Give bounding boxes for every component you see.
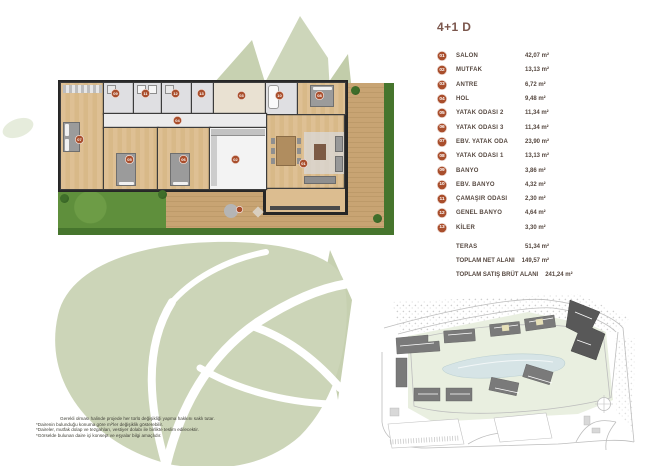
plan-badge-11: 11 xyxy=(141,89,150,98)
plan-type-title: 4+1 D xyxy=(437,20,647,34)
room-area: 2,30 m² xyxy=(525,196,546,202)
legend-row: 09BANYO3,86 m² xyxy=(437,163,647,177)
site-plan xyxy=(378,292,646,458)
room-label: KİLER xyxy=(456,225,475,231)
room-label: HOL xyxy=(456,96,469,102)
dining-table xyxy=(276,136,296,166)
salon-extension xyxy=(263,189,348,215)
terrace-deck-right xyxy=(348,83,384,195)
room-number-badge: 06 xyxy=(437,123,447,133)
plan-badge-03: 03 xyxy=(237,91,246,100)
room-label: GENEL BANYO xyxy=(456,210,502,216)
room-area: 9,48 m² xyxy=(525,96,546,102)
room-area: 11,34 m² xyxy=(525,110,549,116)
room-area: 11,34 m² xyxy=(525,125,549,131)
room-label: BANYO xyxy=(456,168,479,174)
wardrobe xyxy=(63,85,102,93)
chair xyxy=(271,158,275,164)
teras-area: 51,34 m² xyxy=(525,244,549,250)
room-area: 4,32 m² xyxy=(525,182,546,188)
room-number-badge: 10 xyxy=(437,180,447,190)
room-number-badge: 13 xyxy=(437,223,447,233)
roof-patch-1 xyxy=(502,325,510,332)
chair xyxy=(271,138,275,144)
teras-badge xyxy=(236,206,243,213)
legend-row: 07EBV. YATAK ODA23,90 m² xyxy=(437,135,647,149)
brochure-page: 01 02 03 04 05 06 07 08 09 10 11 12 13 4… xyxy=(0,0,660,466)
tv-unit xyxy=(270,206,340,210)
legend-row: 13KİLER3,30 m² xyxy=(437,221,647,235)
chair xyxy=(297,138,301,144)
plant xyxy=(373,214,382,223)
plan-badge-04: 04 xyxy=(173,116,182,125)
room-area: 3,30 m² xyxy=(525,225,546,231)
kitchen-counter-top xyxy=(211,129,265,136)
floor-plan: 01 02 03 04 05 06 07 08 09 10 11 12 13 xyxy=(58,80,394,242)
plant xyxy=(351,86,360,95)
chair xyxy=(271,148,275,154)
legend-row: 01SALON42,07 m² xyxy=(437,49,647,63)
legend-row: 12GENEL BANYO4,64 m² xyxy=(437,206,647,220)
legend-row: 06YATAK ODASI 311,34 m² xyxy=(437,120,647,134)
legend-row: 03ANTRE6,72 m² xyxy=(437,78,647,92)
total-net-label: TOPLAM NET ALANI xyxy=(456,258,515,264)
room-number-badge: 05 xyxy=(437,108,447,118)
leaf-blade-faint xyxy=(0,114,36,142)
teras-label: TERAS xyxy=(456,244,477,250)
total-brut-label: TOPLAM SATIŞ BRÜT ALANI xyxy=(456,272,538,278)
plan-badge-10: 10 xyxy=(275,91,284,100)
plan-badge-05: 05 xyxy=(125,155,134,164)
plan-badge-01: 01 xyxy=(299,159,308,168)
armchair-1 xyxy=(335,136,343,152)
room-legend: 4+1 D 01SALON42,07 m²02MUTFAK13,13 m²03A… xyxy=(437,20,647,282)
roof-patch-2 xyxy=(536,318,544,325)
total-brut-row: TOPLAM SATIŞ BRÜT ALANI 241,24 m² xyxy=(456,268,647,282)
room-label: YATAK ODASI 1 xyxy=(456,153,504,159)
room-number-badge: 01 xyxy=(437,51,447,61)
room-number-badge: 08 xyxy=(437,151,447,161)
room-area: 42,07 m² xyxy=(525,53,549,59)
legend-row: 11ÇAMAŞIR ODASI2,30 m² xyxy=(437,192,647,206)
plant xyxy=(158,190,167,199)
disclaimer: Gerekli olması halinde projede her türlü… xyxy=(36,416,261,439)
room-label: YATAK ODASI 3 xyxy=(456,125,504,131)
room-kiler xyxy=(192,83,214,114)
plan-badge-09: 09 xyxy=(111,89,120,98)
room-number-badge: 03 xyxy=(437,80,447,90)
room-area: 23,90 m² xyxy=(525,139,549,145)
legend-row: 04HOL9,48 m² xyxy=(437,92,647,106)
legend-row: 02MUTFAK13,13 m² xyxy=(437,63,647,77)
total-brut-area: 241,24 m² xyxy=(545,272,572,278)
coffee-table xyxy=(314,144,326,160)
plant xyxy=(60,194,69,203)
legend-row: 10EBV. BANYO4,32 m² xyxy=(437,178,647,192)
plan-badge-13: 13 xyxy=(197,89,206,98)
room-hol xyxy=(104,114,266,128)
legend-row-teras: TERAS 51,34 m² xyxy=(437,240,647,254)
room-label: SALON xyxy=(456,53,478,59)
lawn-left xyxy=(58,192,166,230)
legend-row: 08YATAK ODASI 113,13 m² xyxy=(437,149,647,163)
total-net-area: 149,57 m² xyxy=(522,258,549,264)
plan-badge-07: 07 xyxy=(75,135,84,144)
sofa xyxy=(304,176,336,184)
room-area: 13,13 m² xyxy=(525,67,549,73)
kitchen-counter-side xyxy=(211,136,217,186)
room-label: YATAK ODASI 2 xyxy=(456,110,504,116)
room-number-badge: 12 xyxy=(437,208,447,218)
room-number-badge: 02 xyxy=(437,65,447,75)
room-label: EBV. BANYO xyxy=(456,182,495,188)
room-area: 3,86 m² xyxy=(525,168,546,174)
room-label: EBV. YATAK ODA xyxy=(456,139,508,145)
lawn-strip-bottom xyxy=(58,228,394,235)
total-net-row: TOPLAM NET ALANI 149,57 m² xyxy=(456,254,647,268)
legend-row: 05YATAK ODASI 211,34 m² xyxy=(437,106,647,120)
armchair-2 xyxy=(335,156,343,172)
room-number-badge: 07 xyxy=(437,137,447,147)
room-area: 4,64 m² xyxy=(525,210,546,216)
room-label: MUTFAK xyxy=(456,67,482,73)
plan-badge-12: 12 xyxy=(171,89,180,98)
lawn-strip-right xyxy=(384,83,394,230)
room-area: 6,72 m² xyxy=(525,82,546,88)
plan-badge-02: 02 xyxy=(231,155,240,164)
room-label: ANTRE xyxy=(456,82,478,88)
plan-badge-08: 08 xyxy=(315,91,324,100)
room-number-badge: 11 xyxy=(437,194,447,204)
disclaimer-line: *Görselde bulunan daire içi konsept ve e… xyxy=(36,433,261,439)
room-label: ÇAMAŞIR ODASI xyxy=(456,196,507,202)
room-number-badge: 09 xyxy=(437,166,447,176)
room-area: 13,13 m² xyxy=(525,153,549,159)
chair xyxy=(297,148,301,154)
room-number-badge: 04 xyxy=(437,94,447,104)
plan-badge-06: 06 xyxy=(179,155,188,164)
legend-rows: 01SALON42,07 m²02MUTFAK13,13 m²03ANTRE6,… xyxy=(437,49,647,235)
